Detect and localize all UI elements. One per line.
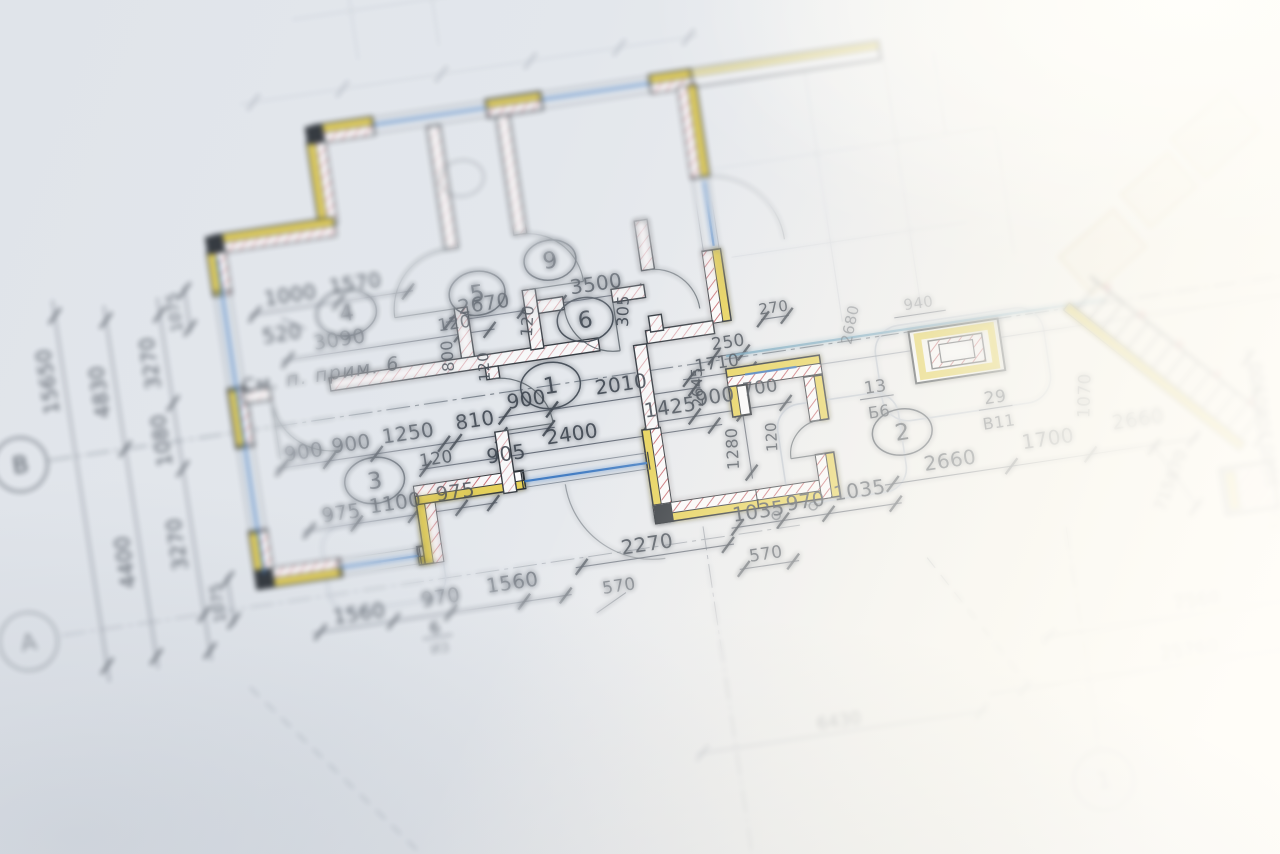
dim-label: 900 [330,429,372,459]
dim-label: 700 [741,375,779,401]
dim-label: 6430 [816,708,863,734]
dim-label: 1075 [206,582,230,624]
plan-note: См. п. прим. 6 [239,353,401,398]
dim-label: 810 [454,405,496,435]
dim-label: 13 [863,376,888,399]
exterior-walls [191,41,945,589]
dim-label: 120 [474,351,494,382]
dim-label: 1075 [163,291,187,333]
blueprint-photo: В А 1 1 2 3 4 5 6 9 См. п. прим. [0,0,1280,854]
dim-label: 570 [748,542,784,567]
dim-label: 3270 [161,517,192,572]
dim-label: 1700 [1020,423,1075,454]
dim-label: 3270 [134,336,165,391]
dim-label: 2660 [922,444,977,475]
dim-label: 940 [902,292,934,314]
dim-label: 1250 [380,417,435,448]
room-number: 2 [893,419,911,447]
dim-label: 29 [983,386,1008,409]
dim-label: 1000 [1251,395,1277,442]
dim-label: 1070 [1074,373,1095,418]
dim-label: 975 [434,477,476,507]
dim-label: 2660 [1110,403,1165,434]
dim-label: 120 [517,305,538,338]
grid-axis-label-v: В [11,452,30,480]
dim-label: 1570 [328,267,383,298]
dim-label: 270 [757,297,789,319]
dim-label: 1560 [331,597,386,628]
floor-plan-drawing: В А 1 1 2 3 4 5 6 9 См. п. прим. [0,0,1280,854]
dim-label: И3 [430,640,451,658]
dim-label: 870 [1162,447,1191,483]
dim-label: 1035 [832,474,887,505]
far-ticks [685,629,1066,761]
dim-label: 570 [601,574,637,599]
dim-label: 800 [437,339,458,372]
dim-label: 4830 [84,364,115,419]
dim-label: 715 [1150,477,1179,513]
grid-axis-label-bottom: 1 [1095,767,1113,795]
dim-label: 520 [1266,500,1280,532]
dim-label: 3090 [312,323,367,354]
dim-label: Б6 [867,401,892,423]
dim-label: 305 [613,295,633,327]
faint-adjacent-rooms [1050,92,1268,295]
dim-label: 1080 [146,413,177,468]
dim-label: 15650 [31,348,64,416]
grid-axis-label-a: А [19,629,39,657]
dim-label: 900 [505,384,547,414]
dim-label: 7560 [1172,587,1222,615]
room-number: 6 [576,307,594,335]
floor-plan-sharp-layer: В А 1 1 2 3 4 5 6 9 См. п. прим. [0,0,1280,854]
dim-label: В11 [981,410,1016,434]
room-number: 3 [366,468,384,496]
dim-label: 905 [485,439,527,469]
dim-label: 2270 [619,528,674,559]
dim-label: 900 [1246,361,1271,397]
room-number: 9 [541,247,559,275]
dim-label: 2670 [456,288,511,319]
dim-label: 970 [784,486,826,516]
stair-flight-detail [1064,272,1271,450]
dim-label: 120 [418,447,454,472]
dim-label: 120 [762,421,782,452]
dim-label: 1280 [722,427,744,470]
dim-label: 900 [282,437,324,467]
dim-label: 520 [261,319,303,349]
dim-label: 2645 [688,367,708,408]
dim-label: 4400 [109,535,140,590]
dim-label: 6 [428,617,441,637]
column-detail [909,319,1006,384]
room-number: 4 [338,300,356,328]
